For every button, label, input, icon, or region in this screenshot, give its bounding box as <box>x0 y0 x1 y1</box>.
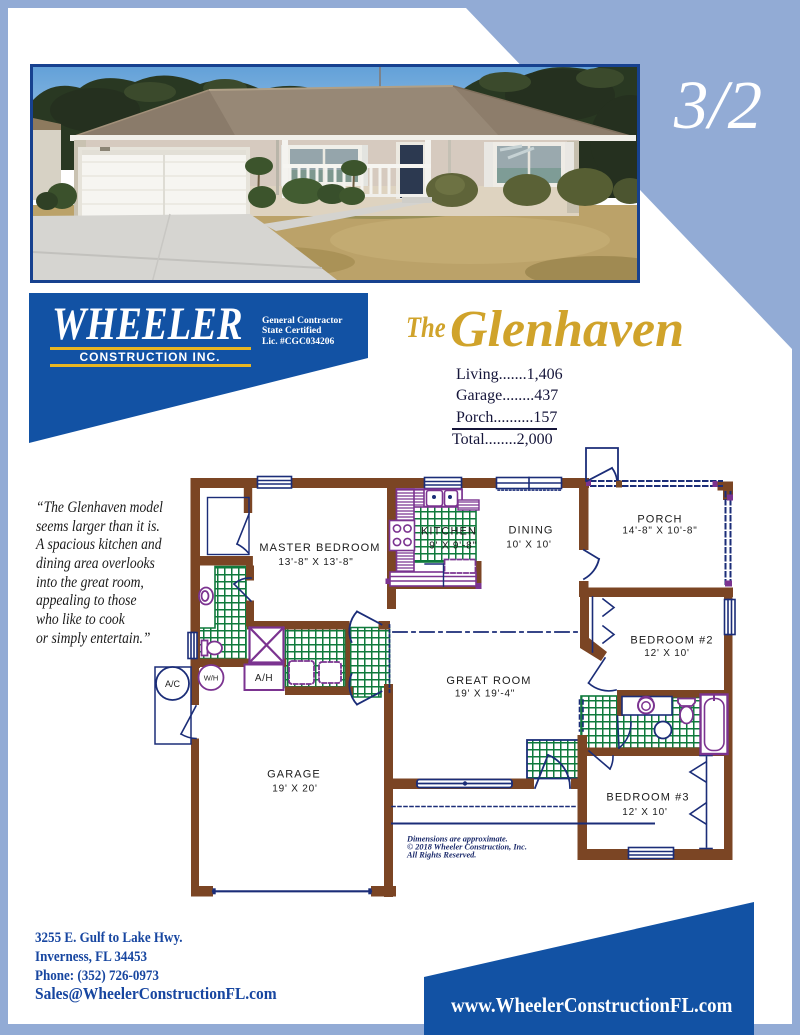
svg-text:13'-8" X 13'-8": 13'-8" X 13'-8" <box>278 557 353 568</box>
svg-text:GARAGE: GARAGE <box>267 769 321 781</box>
svg-text:14'-8" X 10'-8": 14'-8" X 10'-8" <box>622 526 697 537</box>
svg-text:12' X 10': 12' X 10' <box>644 648 690 659</box>
svg-text:PORCH: PORCH <box>637 514 682 526</box>
svg-text:19' X 20': 19' X 20' <box>272 784 318 795</box>
svg-text:All Rights Reserved.: All Rights Reserved. <box>406 851 476 860</box>
svg-text:GREAT ROOM: GREAT ROOM <box>446 675 531 687</box>
svg-text:A/C: A/C <box>165 679 181 689</box>
svg-text:A/H: A/H <box>255 673 273 684</box>
svg-text:BEDROOM #2: BEDROOM #2 <box>630 635 713 647</box>
svg-text:W/H: W/H <box>204 674 219 683</box>
svg-text:9' X 9'-8": 9' X 9'-8" <box>429 541 477 552</box>
svg-text:DINING: DINING <box>508 525 553 537</box>
svg-text:BEDROOM #3: BEDROOM #3 <box>606 792 689 804</box>
svg-text:12' X 10': 12' X 10' <box>622 807 668 818</box>
svg-text:KITCHEN: KITCHEN <box>421 526 477 538</box>
svg-text:MASTER BEDROOM: MASTER BEDROOM <box>259 542 380 554</box>
svg-text:10' X 10': 10' X 10' <box>506 540 552 551</box>
svg-text:19' X 19'-4": 19' X 19'-4" <box>455 689 515 700</box>
